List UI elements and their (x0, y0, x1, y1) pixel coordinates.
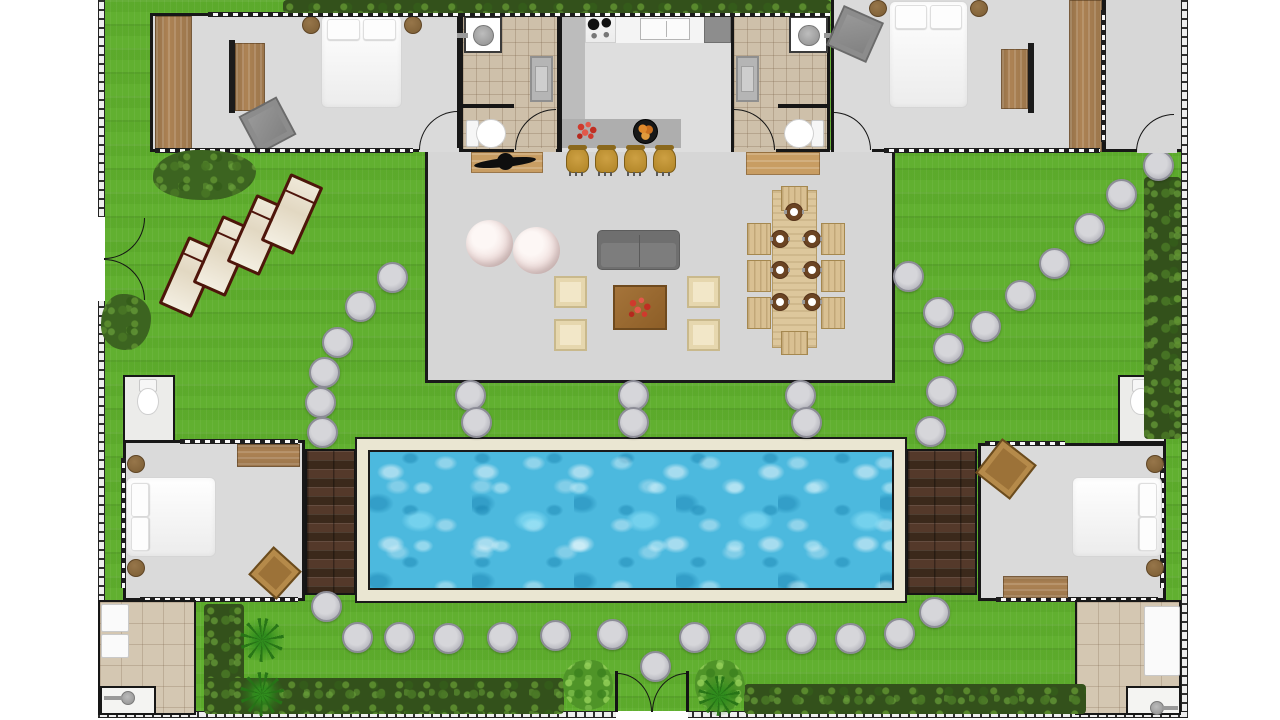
stepping-stone[interactable] (461, 407, 492, 438)
stepping-stone[interactable] (915, 416, 946, 447)
stepping-stone[interactable] (618, 380, 649, 411)
nightstand[interactable] (1146, 559, 1164, 577)
gate-bush[interactable] (563, 660, 613, 710)
double-bed-1[interactable] (321, 15, 402, 108)
bathroom-1-sink[interactable] (464, 16, 502, 53)
stepping-stone[interactable] (618, 407, 649, 438)
stepping-stone[interactable] (970, 311, 1001, 342)
bathroom-1-toilet[interactable] (466, 118, 506, 149)
pool-water[interactable] (368, 450, 894, 590)
dining-chair[interactable] (821, 223, 845, 255)
stepping-stone[interactable] (487, 622, 518, 653)
stepping-stone[interactable] (926, 376, 957, 407)
bar-stool[interactable] (566, 147, 589, 173)
stepping-stone[interactable] (1143, 150, 1174, 181)
nightstand[interactable] (127, 455, 145, 473)
stepping-stone[interactable] (679, 622, 710, 653)
hedge-top (283, 0, 831, 13)
stepping-stone[interactable] (540, 620, 571, 651)
faucet-pipe (104, 696, 122, 700)
stepping-stone[interactable] (305, 387, 336, 418)
pool-deck-right (906, 449, 977, 595)
kitchen-sink[interactable] (640, 18, 690, 40)
stepping-stone[interactable] (342, 622, 373, 653)
stepping-stone[interactable] (345, 291, 376, 322)
stepping-stone[interactable] (455, 380, 486, 411)
dining-chair[interactable] (747, 223, 771, 255)
faucet[interactable] (121, 691, 135, 705)
double-bed-3[interactable] (126, 477, 216, 557)
bathroom-2-sink[interactable] (789, 16, 828, 53)
bathroom-2-shower[interactable] (736, 56, 759, 102)
nightstand[interactable] (869, 0, 887, 17)
place-setting[interactable] (804, 262, 820, 278)
entry-mat-right[interactable] (746, 152, 820, 175)
stepping-stone[interactable] (835, 623, 866, 654)
stepping-stone[interactable] (791, 407, 822, 438)
fruit-bowl[interactable] (633, 119, 658, 144)
desk-2[interactable] (1001, 49, 1028, 109)
bar-stool[interactable] (595, 147, 618, 173)
window (1101, 10, 1106, 142)
hedge-right (1144, 177, 1181, 439)
washer[interactable] (101, 634, 129, 658)
dresser-3[interactable] (237, 444, 300, 467)
stepping-stone[interactable] (933, 333, 964, 364)
stepping-stone[interactable] (1005, 280, 1036, 311)
daybed[interactable] (1144, 606, 1180, 676)
nightstand[interactable] (127, 559, 145, 577)
nightstand[interactable] (1146, 455, 1164, 473)
wardrobe-1[interactable] (155, 16, 192, 149)
palm-plant[interactable] (698, 676, 740, 716)
double-bed-4[interactable] (1072, 477, 1162, 557)
stepping-stone[interactable] (433, 623, 464, 654)
toilet-3[interactable] (137, 379, 159, 415)
gate-opening-bottom (616, 711, 688, 718)
bean-bag[interactable] (466, 220, 513, 267)
stepping-stone[interactable] (311, 591, 342, 622)
stepping-stone[interactable] (923, 297, 954, 328)
armchair[interactable] (554, 319, 587, 351)
bathroom-2-toilet[interactable] (784, 118, 824, 149)
place-setting[interactable] (772, 231, 788, 247)
ceiling-fan-hub[interactable] (497, 153, 514, 170)
dining-chair[interactable] (821, 297, 845, 329)
stepping-stone[interactable] (1074, 213, 1105, 244)
bar-stool[interactable] (624, 147, 647, 173)
stepping-stone[interactable] (786, 623, 817, 654)
flower-vase[interactable] (575, 121, 599, 141)
bathroom-1-wall (460, 104, 514, 108)
window (884, 148, 1100, 153)
stepping-stone[interactable] (384, 622, 415, 653)
dining-chair[interactable] (747, 260, 771, 292)
stepping-stone[interactable] (597, 619, 628, 650)
double-bed-2[interactable] (889, 1, 968, 108)
place-setting[interactable] (786, 204, 802, 220)
place-setting[interactable] (772, 262, 788, 278)
washer[interactable] (101, 604, 129, 632)
stepping-stone[interactable] (309, 357, 340, 388)
stepping-stone[interactable] (884, 618, 915, 649)
dining-chair[interactable] (747, 297, 771, 329)
place-setting[interactable] (804, 294, 820, 310)
hedge-bottom-right (744, 684, 1086, 714)
armchair[interactable] (687, 319, 720, 351)
desk-1[interactable] (235, 43, 265, 111)
nightstand[interactable] (970, 0, 988, 17)
fridge[interactable] (704, 15, 731, 43)
bar-stool[interactable] (653, 147, 676, 173)
stepping-stone[interactable] (307, 417, 338, 448)
floor-plan-canvas (0, 0, 1280, 720)
sofa[interactable] (597, 230, 680, 270)
bean-bag[interactable] (513, 227, 560, 274)
pool-deck-left (305, 449, 356, 595)
faucet-pipe (1162, 706, 1178, 710)
bathroom-2-wall (778, 104, 830, 108)
armchair[interactable] (687, 276, 720, 308)
stepping-stone[interactable] (377, 262, 408, 293)
place-setting[interactable] (804, 231, 820, 247)
stepping-stone[interactable] (919, 597, 950, 628)
place-setting[interactable] (772, 294, 788, 310)
desk-2-board[interactable] (1028, 43, 1034, 113)
dining-chair[interactable] (821, 260, 845, 292)
stove[interactable] (585, 15, 616, 43)
nightstand[interactable] (404, 16, 422, 34)
nightstand[interactable] (302, 16, 320, 34)
palm-plant[interactable] (240, 672, 284, 716)
wardrobe-2[interactable] (1069, 0, 1102, 152)
bathroom-1-shower[interactable] (530, 56, 553, 102)
stepping-stone[interactable] (1106, 179, 1137, 210)
kitchen-counter-side (562, 13, 585, 119)
armchair[interactable] (554, 276, 587, 308)
stepping-stone[interactable] (640, 651, 671, 682)
stepping-stone[interactable] (785, 380, 816, 411)
dresser-4[interactable] (1003, 576, 1068, 598)
stepping-stone[interactable] (893, 261, 924, 292)
dining-chair[interactable] (781, 331, 808, 355)
boundary-wall-right (1181, 0, 1188, 718)
table-flowers[interactable] (626, 296, 654, 320)
stepping-stone[interactable] (735, 622, 766, 653)
stepping-stone[interactable] (322, 327, 353, 358)
stepping-stone[interactable] (1039, 248, 1070, 279)
palm-plant[interactable] (240, 618, 284, 662)
